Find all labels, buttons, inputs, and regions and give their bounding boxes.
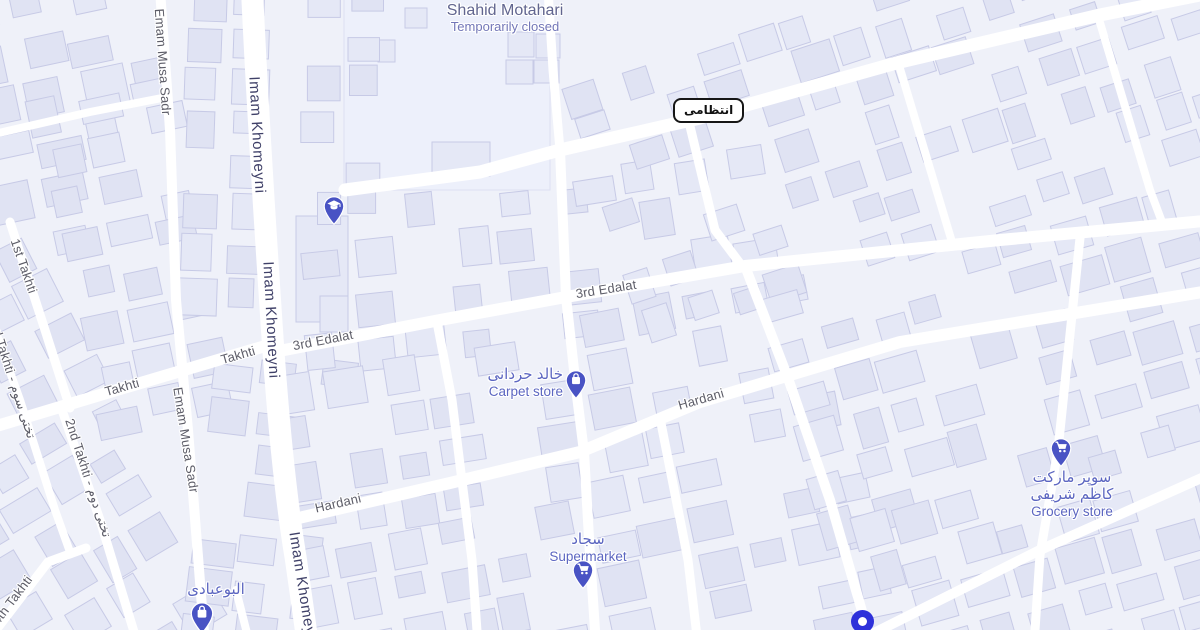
building [184,67,216,100]
building [1117,573,1164,611]
building [383,355,420,396]
building [301,112,334,143]
building [992,66,1027,101]
map-root[interactable]: Emam Musa Sadr Imam Khomeyni Imam Khomey… [0,0,1200,630]
building [587,475,631,518]
building [1102,529,1142,573]
building [405,191,435,227]
building [186,111,215,148]
poi-name: سجاد [549,532,626,549]
building [1105,237,1151,282]
building [1061,87,1095,125]
graduation-cap-pin-icon[interactable] [322,195,346,226]
building [877,142,912,180]
building [500,191,531,217]
building [1016,0,1055,1]
building [739,23,783,61]
building [1039,49,1080,86]
building [140,622,183,630]
building [508,32,534,57]
building [1060,255,1110,296]
building [1121,16,1164,50]
building [356,291,396,327]
building [1095,384,1142,419]
poi-carpet-store[interactable]: خالد حردانی Carpet store [487,367,563,399]
building [1159,233,1200,268]
shopping-cart-pin-icon[interactable] [571,559,595,590]
building [587,348,633,391]
road-2nd-takhti [62,410,138,630]
poi-status: Temporarily closed [447,20,564,35]
building [442,565,490,603]
building [124,267,163,301]
building [404,611,449,630]
building [148,383,184,416]
building [865,105,899,145]
building [301,250,340,280]
building [323,366,369,409]
building [70,0,107,15]
building [51,186,82,218]
building [821,318,858,348]
building [546,463,584,503]
building [1009,260,1057,293]
building [750,538,786,568]
building [602,198,639,231]
building [99,170,142,205]
building [352,0,384,11]
building [891,398,924,432]
poi-grocery-store[interactable]: سوپر مارکت کاظم شریفی Grocery store [1031,470,1114,519]
building-cluster [560,0,1200,347]
building [909,295,942,325]
building [464,608,499,630]
building [699,547,745,589]
poi-name: البوعبادی [187,582,244,599]
building [0,85,21,126]
building [1133,321,1183,365]
poi-category: Grocery store [1031,504,1114,519]
building [1192,85,1200,118]
building [65,598,112,630]
building [308,0,340,17]
building [25,31,69,69]
building [622,66,654,100]
shopping-bag-pin-icon[interactable] [564,369,588,400]
building [350,449,388,488]
building [1156,519,1200,561]
building [7,0,41,18]
poi-category: Carpet store [487,384,563,399]
building [506,60,533,84]
building [597,560,647,607]
poi-name: Shahid Motahari [447,2,564,20]
building [1141,425,1176,458]
building [335,542,376,578]
building [378,40,395,62]
building [90,450,125,483]
building [854,407,889,449]
building [83,265,114,297]
building [1189,318,1200,351]
building [0,488,51,534]
building [183,194,218,229]
building [902,556,941,588]
building [1144,57,1181,98]
building [1196,352,1200,394]
building [980,0,1015,20]
poi-name-line1: سوپر مارکت [1031,470,1114,487]
area-badge-entezami[interactable]: انتظامی [673,98,744,123]
poi-name: خالد حردانی [487,367,563,384]
building [853,193,885,222]
building [348,38,380,62]
building [609,607,657,630]
building [194,0,228,22]
building [874,350,925,393]
building [996,525,1027,554]
building [1037,172,1070,202]
building [818,580,854,609]
building [400,452,430,479]
building [53,144,87,178]
building [556,624,594,630]
poi-name-line2: کاظم شریفی [1031,487,1114,504]
building [80,311,124,351]
building [395,571,426,598]
poi-dot-hole [858,617,867,626]
poi-dot-icon[interactable] [851,610,874,630]
poi-albuabadi[interactable]: البوعبادی [187,582,244,599]
building [178,278,217,316]
building [876,18,912,58]
building [1162,129,1200,166]
building [1174,557,1200,599]
building [498,554,530,582]
building [868,0,909,11]
building [497,228,535,264]
building [1079,583,1112,615]
building [687,500,734,542]
building [629,135,669,169]
building [750,409,786,442]
building [932,626,973,630]
building [388,528,427,570]
building [834,27,871,65]
building [0,180,35,226]
building [87,132,125,168]
building [0,455,29,494]
building [0,46,8,87]
building [698,43,741,76]
building [936,7,970,40]
building [753,225,788,255]
building-cluster [849,411,1200,630]
building [958,522,1002,564]
building [228,278,254,308]
building [208,397,250,436]
building [237,535,276,566]
building [1074,168,1113,204]
building [348,578,383,620]
building [391,400,428,434]
building [579,308,624,347]
building [980,612,1018,630]
building [636,518,682,558]
building [350,65,378,95]
building [904,438,954,477]
building [1144,362,1189,399]
building [825,161,867,198]
poi-shahid-motahari[interactable]: Shahid Motahari Temporarily closed [447,2,564,34]
building [106,475,151,516]
building [676,459,721,494]
building [989,195,1031,226]
shopping-bag-pin-icon[interactable] [189,601,215,630]
building [128,512,178,561]
building [710,584,752,618]
building [936,384,985,426]
building [639,198,675,240]
building [785,177,818,209]
building [1141,610,1181,630]
building [405,8,427,28]
building [320,296,348,332]
building [212,363,253,393]
building [127,302,174,342]
badge-label: انتظامی [684,103,733,117]
building [181,233,212,271]
building [1157,92,1192,130]
building [935,490,979,528]
building [355,236,396,277]
building [726,145,765,179]
building [588,387,636,430]
building [962,108,1008,152]
building [497,593,531,630]
building [573,176,617,207]
building [1011,138,1051,169]
building [307,66,340,101]
building [1090,331,1131,365]
building [884,189,919,221]
building [778,16,810,50]
building [67,36,113,69]
building [857,447,892,479]
building [106,215,152,247]
building [459,226,492,267]
shopping-cart-pin-icon[interactable] [1049,437,1073,468]
building [1171,10,1200,41]
building [1179,596,1200,630]
building [693,326,728,366]
building [775,129,819,173]
building [187,28,222,62]
